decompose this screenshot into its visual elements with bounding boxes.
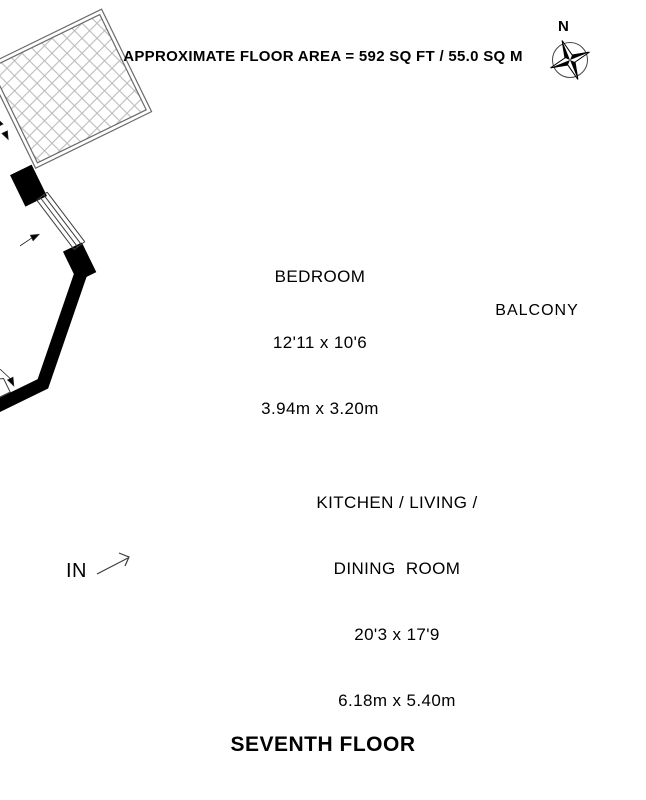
balcony-door-arrow-down <box>2 131 11 141</box>
floor-name-title: SEVENTH FLOOR <box>0 733 646 757</box>
plan-rotated-group <box>0 0 238 535</box>
balcony-area <box>0 9 152 168</box>
kitchen-dims-metric: 6.18m x 5.40m <box>316 690 477 712</box>
balcony-door-arrow-up <box>0 117 3 127</box>
entry-arrow <box>97 553 129 574</box>
kitchen-label: KITCHEN / LIVING / DINING ROOM 20'3 x 17… <box>316 448 477 756</box>
kitchen-name-line1: KITCHEN / LIVING / <box>316 492 477 514</box>
bay-corner-block <box>63 242 96 281</box>
floor-area-title: APPROXIMATE FLOOR AREA = 592 SQ FT / 55.… <box>0 48 646 65</box>
bedroom-dims-imperial: 12'11 x 10'6 <box>261 332 379 354</box>
entrance-in-label: IN <box>66 560 87 583</box>
bedroom-dims-metric: 3.94m x 3.20m <box>261 398 379 420</box>
kitchen-name-line2: DINING ROOM <box>316 558 477 580</box>
bedroom-name: BEDROOM <box>261 266 379 288</box>
compass-n-label: N <box>558 18 569 35</box>
kitchen-dims-imperial: 20'3 x 17'9 <box>316 624 477 646</box>
balcony-name: BALCONY <box>495 302 578 320</box>
bedroom-label: BEDROOM 12'11 x 10'6 3.94m x 3.20m <box>261 222 379 464</box>
floorplan-page: APPROXIMATE FLOOR AREA = 592 SQ FT / 55.… <box>0 0 646 800</box>
balcony-lower-block <box>10 165 47 207</box>
